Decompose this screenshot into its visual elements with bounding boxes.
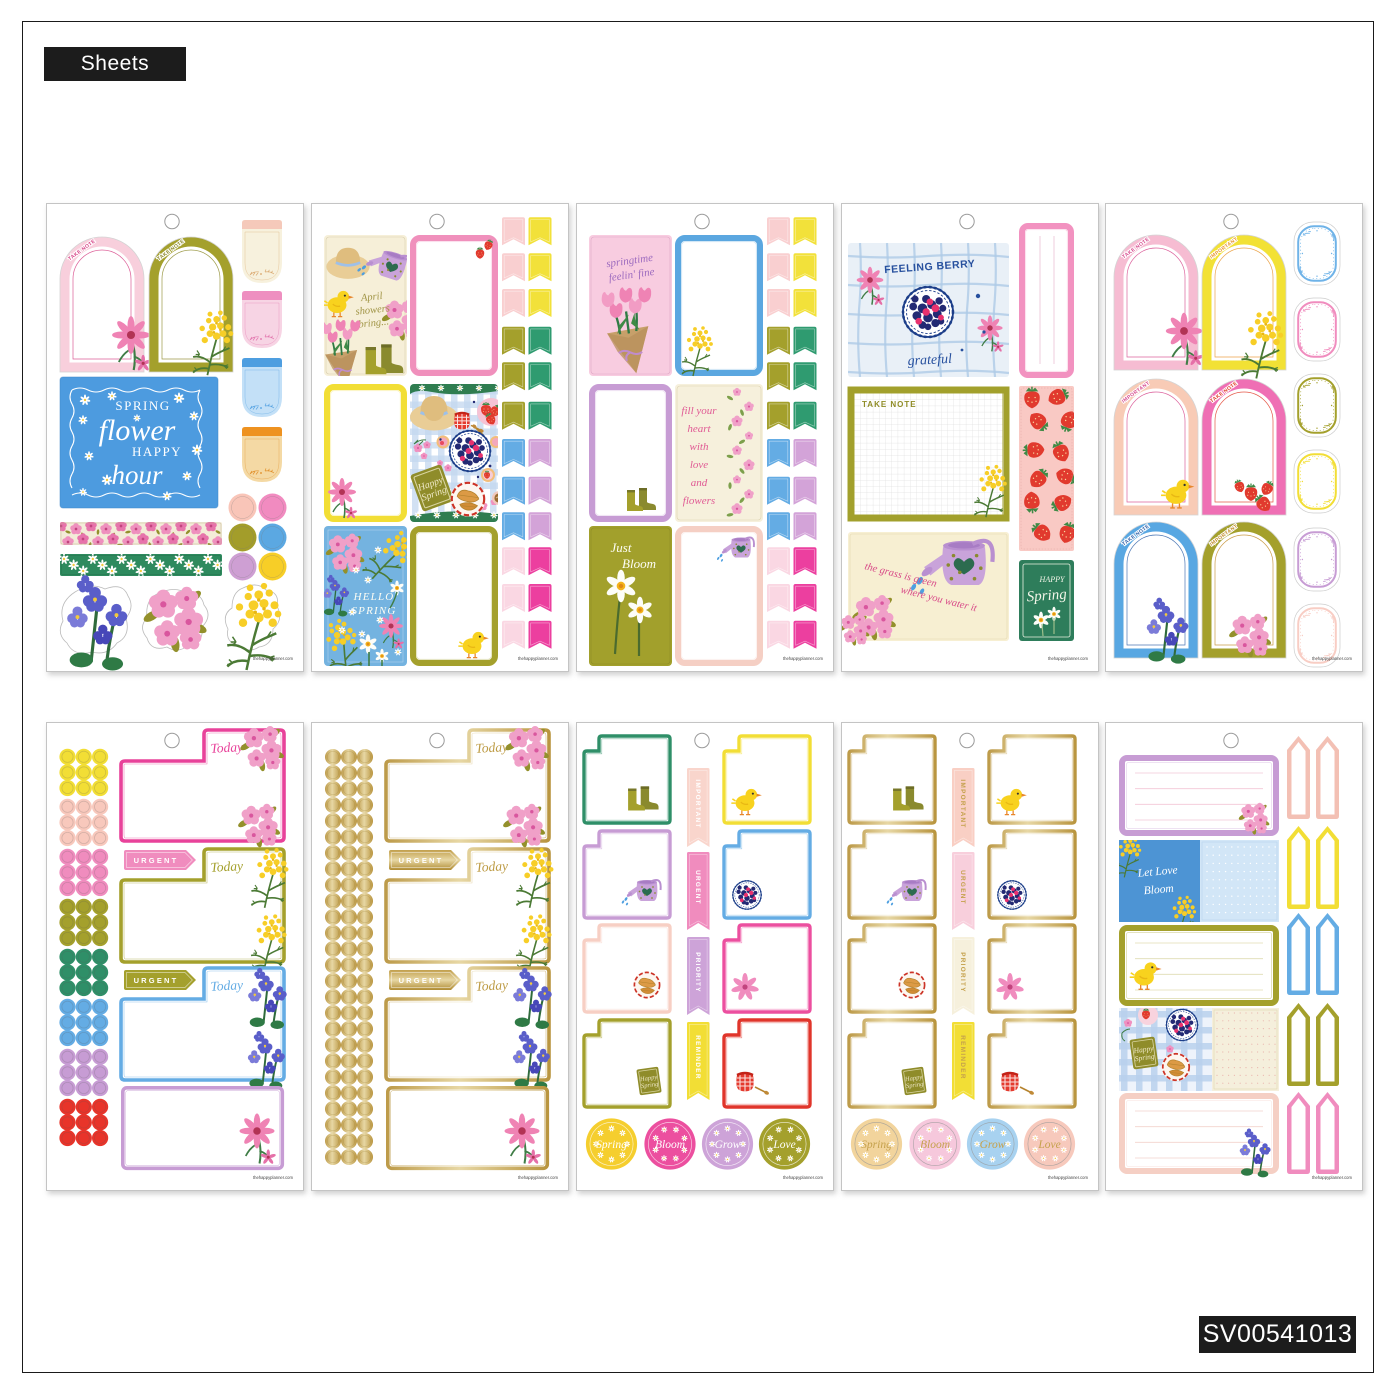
- svg-text:URGENT: URGENT: [134, 976, 179, 985]
- svg-text:Grow: Grow: [980, 1139, 1006, 1151]
- svg-text:Today: Today: [210, 858, 243, 875]
- svg-text:thehappyplanner.com: thehappyplanner.com: [1312, 1175, 1353, 1180]
- svg-text:HELLO: HELLO: [353, 591, 395, 603]
- svg-text:thehappyplanner.com: thehappyplanner.com: [783, 656, 824, 661]
- svg-text:thehappyplanner.com: thehappyplanner.com: [518, 1175, 559, 1180]
- svg-text:Today: Today: [475, 977, 508, 994]
- svg-text:URGENT: URGENT: [959, 870, 966, 905]
- svg-text:Today: Today: [475, 739, 508, 756]
- svg-text:heart: heart: [687, 423, 711, 435]
- svg-text:grateful: grateful: [907, 352, 952, 369]
- svg-text:Today: Today: [210, 739, 243, 756]
- svg-text:Bloom: Bloom: [655, 1139, 685, 1151]
- svg-text:Love: Love: [1037, 1139, 1060, 1151]
- svg-text:thehappyplanner.com: thehappyplanner.com: [253, 656, 294, 661]
- svg-text:Just: Just: [611, 540, 632, 555]
- svg-text:hour: hour: [111, 460, 163, 490]
- svg-text:URGENT: URGENT: [399, 856, 444, 865]
- svg-text:fill your: fill your: [681, 405, 717, 417]
- svg-text:thehappyplanner.com: thehappyplanner.com: [1048, 656, 1089, 661]
- svg-text:thehappyplanner.com: thehappyplanner.com: [1048, 1175, 1089, 1180]
- svg-text:IMPORTANT: IMPORTANT: [959, 779, 966, 828]
- svg-text:thehappyplanner.com: thehappyplanner.com: [783, 1175, 824, 1180]
- svg-text:HAPPY: HAPPY: [132, 444, 182, 459]
- svg-text:SPRING: SPRING: [115, 398, 170, 413]
- svg-text:URGENT: URGENT: [694, 870, 701, 905]
- svg-text:Love: Love: [772, 1139, 795, 1151]
- svg-text:URGENT: URGENT: [399, 976, 444, 985]
- svg-text:love: love: [690, 459, 708, 471]
- svg-text:REMINDER: REMINDER: [959, 1035, 966, 1079]
- svg-text:thehappyplanner.com: thehappyplanner.com: [518, 656, 559, 661]
- svg-text:Today: Today: [210, 977, 243, 994]
- svg-text:and: and: [691, 477, 708, 489]
- svg-text:PRIORITY: PRIORITY: [959, 952, 966, 993]
- svg-text:April: April: [359, 291, 383, 304]
- svg-text:Today: Today: [475, 858, 508, 875]
- svg-text:with: with: [690, 441, 709, 453]
- svg-text:Grow: Grow: [715, 1139, 741, 1151]
- svg-text:REMINDER: REMINDER: [694, 1035, 701, 1079]
- svg-text:thehappyplanner.com: thehappyplanner.com: [1312, 656, 1353, 661]
- svg-text:Spring: Spring: [861, 1139, 892, 1151]
- svg-text:Bloom: Bloom: [622, 556, 656, 571]
- svg-text:Spring: Spring: [1026, 587, 1068, 606]
- svg-text:thehappyplanner.com: thehappyplanner.com: [253, 1175, 294, 1180]
- svg-text:URGENT: URGENT: [134, 856, 179, 865]
- svg-text:PRIORITY: PRIORITY: [694, 952, 701, 993]
- svg-text:TAKE NOTE: TAKE NOTE: [862, 400, 917, 409]
- svg-text:IMPORTANT: IMPORTANT: [694, 779, 701, 828]
- svg-text:HAPPY: HAPPY: [1039, 575, 1066, 584]
- svg-text:Spring: Spring: [596, 1139, 627, 1151]
- svg-text:flowers: flowers: [683, 495, 715, 507]
- svg-text:Bloom: Bloom: [920, 1139, 950, 1151]
